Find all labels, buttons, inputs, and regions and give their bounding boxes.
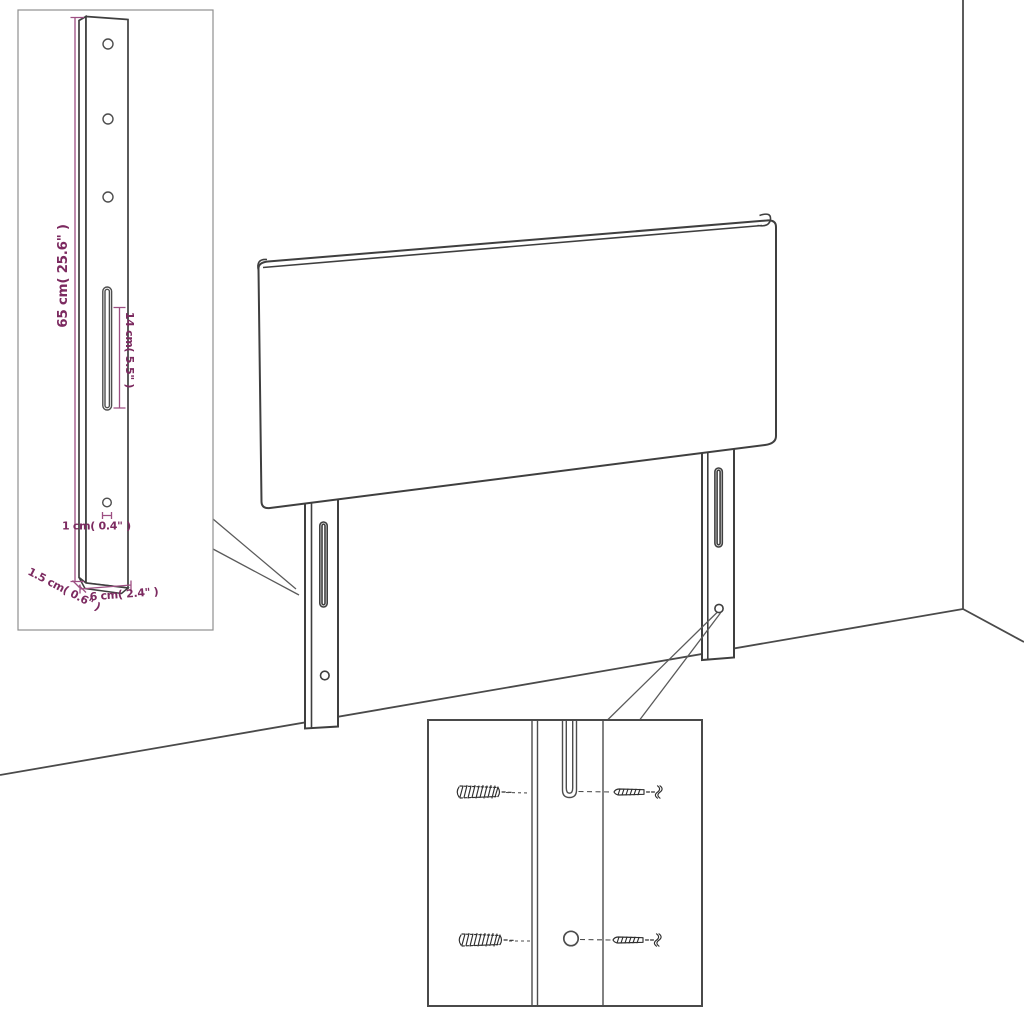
- bracket-drawing: [79, 17, 128, 594]
- leg-body: [702, 441, 734, 660]
- headboard-leg-right: [702, 441, 734, 660]
- floor-line-right: [963, 609, 1024, 642]
- assembly-diagram: 65 cm( 25.6" ) 14 cm( 5.5" ) 1 cm( 0.4" …: [0, 0, 1024, 1024]
- dimension-label-height: 65 cm( 25.6" ): [55, 224, 71, 328]
- callout-line: [213, 519, 296, 589]
- panel-face: [258, 220, 776, 508]
- hardware-detail-inset: [428, 720, 702, 1006]
- dimension-label-hole-diameter: 1 cm( 0.4" ): [62, 520, 131, 533]
- bracket-inset-callout-lines: [213, 519, 299, 595]
- bracket-detail-inset: 65 cm( 25.6" ) 14 cm( 5.5" ) 1 cm( 0.4" …: [18, 10, 213, 630]
- bracket-front-face: [86, 17, 128, 589]
- headboard-leg-left: [305, 491, 338, 729]
- headboard-panel: [258, 214, 776, 508]
- diagram-canvas: 65 cm( 25.6" ) 14 cm( 5.5" ) 1 cm( 0.4" …: [0, 0, 1024, 1024]
- dimension-label-slot-length: 14 cm( 5.5" ): [123, 312, 136, 388]
- callout-line: [640, 613, 721, 720]
- inset-frame: [428, 720, 702, 1006]
- bracket-side-face: [79, 17, 86, 584]
- callout-line: [608, 613, 717, 720]
